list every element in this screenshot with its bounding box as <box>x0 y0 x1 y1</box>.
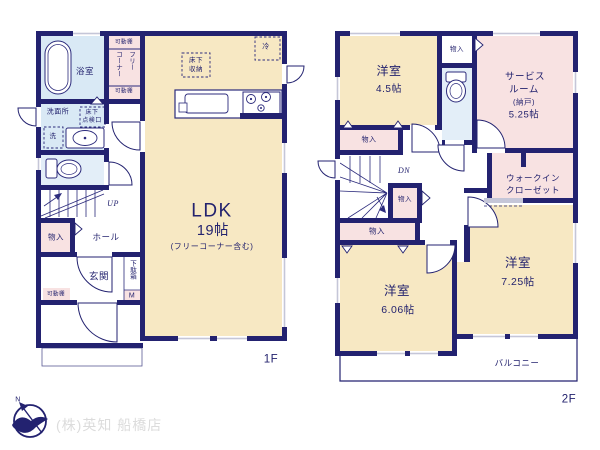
entrance-shelf-label: 可動棚 <box>47 292 65 298</box>
entrance-label: 玄関 <box>89 272 109 282</box>
hall-label: ホール <box>92 233 119 242</box>
room-ldk <box>145 36 282 336</box>
hall-closet-label: 物入 <box>450 47 464 54</box>
bedroom1-size-label: 4.5帖 <box>376 85 402 95</box>
company-name: (株)英知 船橋店 <box>56 418 162 432</box>
porch-step <box>42 348 142 366</box>
bathtub <box>45 41 71 94</box>
service-room-label-2: ルーム <box>509 85 539 95</box>
floor1-stairs <box>41 190 104 218</box>
floor1-label: 1F <box>264 354 278 366</box>
ldk-label: LDK <box>191 202 232 221</box>
floor2-label: 2F <box>562 394 576 406</box>
wic-label-2: クローゼット <box>506 186 560 195</box>
service-room-label-3: (納戸) <box>513 98 535 106</box>
room-bedroom1 <box>340 36 437 125</box>
toilet-1f <box>46 159 57 178</box>
shelf-bottom-label: 可動棚 <box>115 89 133 95</box>
shelf-top-label: 可動棚 <box>115 40 133 46</box>
bedroom1-closet-label: 物入 <box>362 137 377 144</box>
service-room-label-1: サービス <box>505 72 545 82</box>
underfloor-access-label-1: 床下 <box>85 110 98 116</box>
kitchen-sink <box>185 94 228 113</box>
wic-opening <box>484 198 523 203</box>
washer-label: 洗 <box>50 134 57 141</box>
underfloor-storage-label-2: 収納 <box>189 67 203 74</box>
ldk-size-label: 19帖 <box>197 224 229 239</box>
service-room-size-label: 5.25帖 <box>509 110 540 120</box>
bathroom-label: 浴室 <box>76 67 94 76</box>
bedroom2-label: 洋室 <box>384 285 410 298</box>
stairs-up-label: UP <box>107 200 119 208</box>
bedroom1-label: 洋室 <box>376 65 401 77</box>
floor-plan: 浴室 可動棚 フリー コーナー 可動棚 洗面所 床下 点検口 洗 床下 収納 冷… <box>0 0 600 450</box>
compass-icon <box>12 402 48 437</box>
washroom-label: 洗面所 <box>47 109 70 116</box>
underfloor-storage-label-1: 床下 <box>189 58 203 65</box>
bedroom2-size-label: 6.06帖 <box>381 305 414 316</box>
underfloor-access-label-2: 点検口 <box>82 118 102 124</box>
bedroom3-label: 洋室 <box>505 257 531 270</box>
fridge-label: 冷 <box>262 44 270 51</box>
free-corner-label-col1: フリー <box>127 51 134 71</box>
bedroom3-size-label: 7.25帖 <box>501 277 534 288</box>
wic-label-1: ウォークイン <box>506 174 560 183</box>
free-corner-label-col2: コーナー <box>114 51 121 77</box>
floor2-fixtures <box>446 72 466 102</box>
floor2-stairs <box>340 156 387 218</box>
shoe-box-m-label: M <box>129 293 135 300</box>
stairs-down-label: DN <box>398 167 410 175</box>
shoe-box-label: 下駄箱 <box>128 260 135 280</box>
storage-1f-label: 物入 <box>48 233 64 241</box>
balcony-label: バルコニー <box>495 359 540 368</box>
ldk-note-label: (フリーコーナー含む) <box>171 243 254 251</box>
stair-closet-label: 物入 <box>398 197 412 204</box>
compass-north-label: N <box>15 397 21 404</box>
bedroom2-closet-label: 物入 <box>369 227 385 235</box>
